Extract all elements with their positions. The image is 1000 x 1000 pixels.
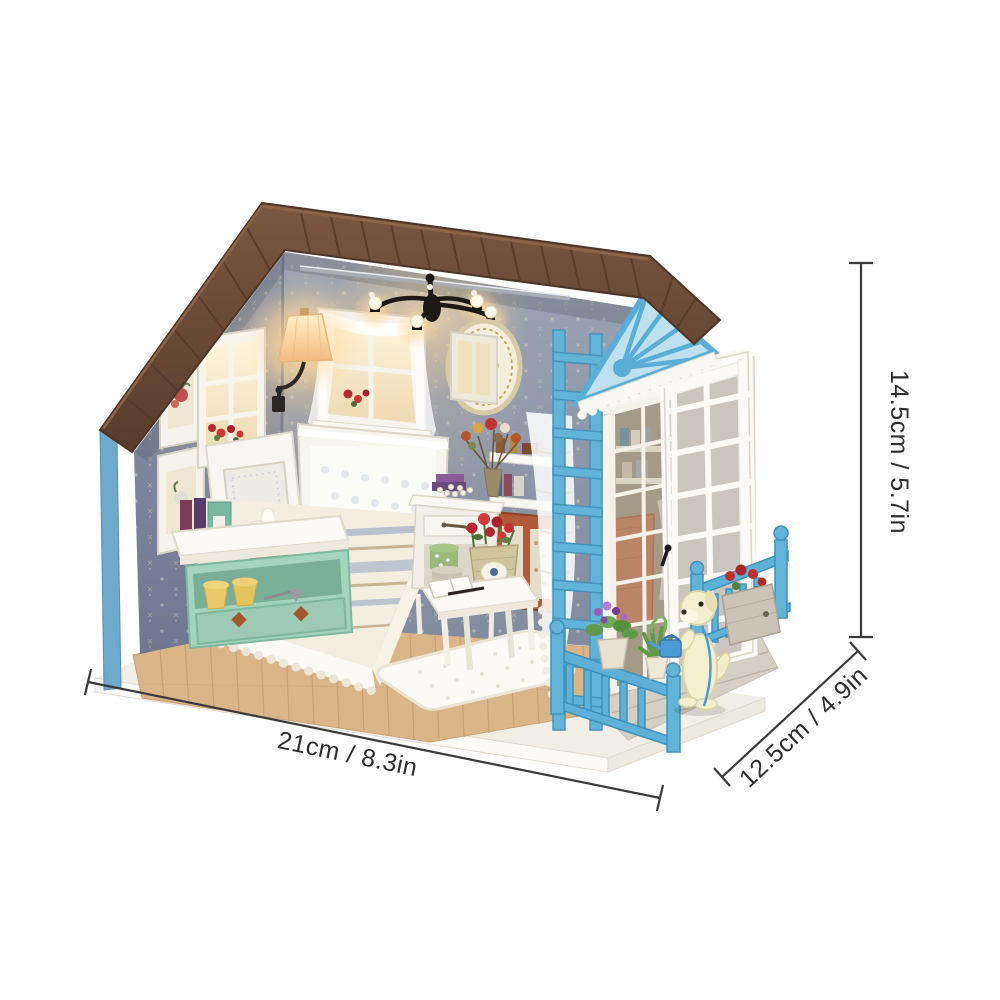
dimension-height: 14.5cm / 5.7in [849, 263, 913, 637]
mint-bench [172, 498, 352, 648]
left-wall-edge [100, 430, 121, 690]
dimension-label-height: 14.5cm / 5.7in [885, 370, 913, 534]
product-photo: 21cm / 8.3in 12.5cm / 4.9in 14.5cm / 5.7… [0, 0, 1000, 1000]
small-back-window [451, 332, 497, 404]
planter-box [722, 565, 780, 646]
dollhouse-illustration: 21cm / 8.3in 12.5cm / 4.9in 14.5cm / 5.7… [0, 0, 1000, 1000]
dimension-label-depth: 12.5cm / 4.9in [734, 661, 873, 793]
